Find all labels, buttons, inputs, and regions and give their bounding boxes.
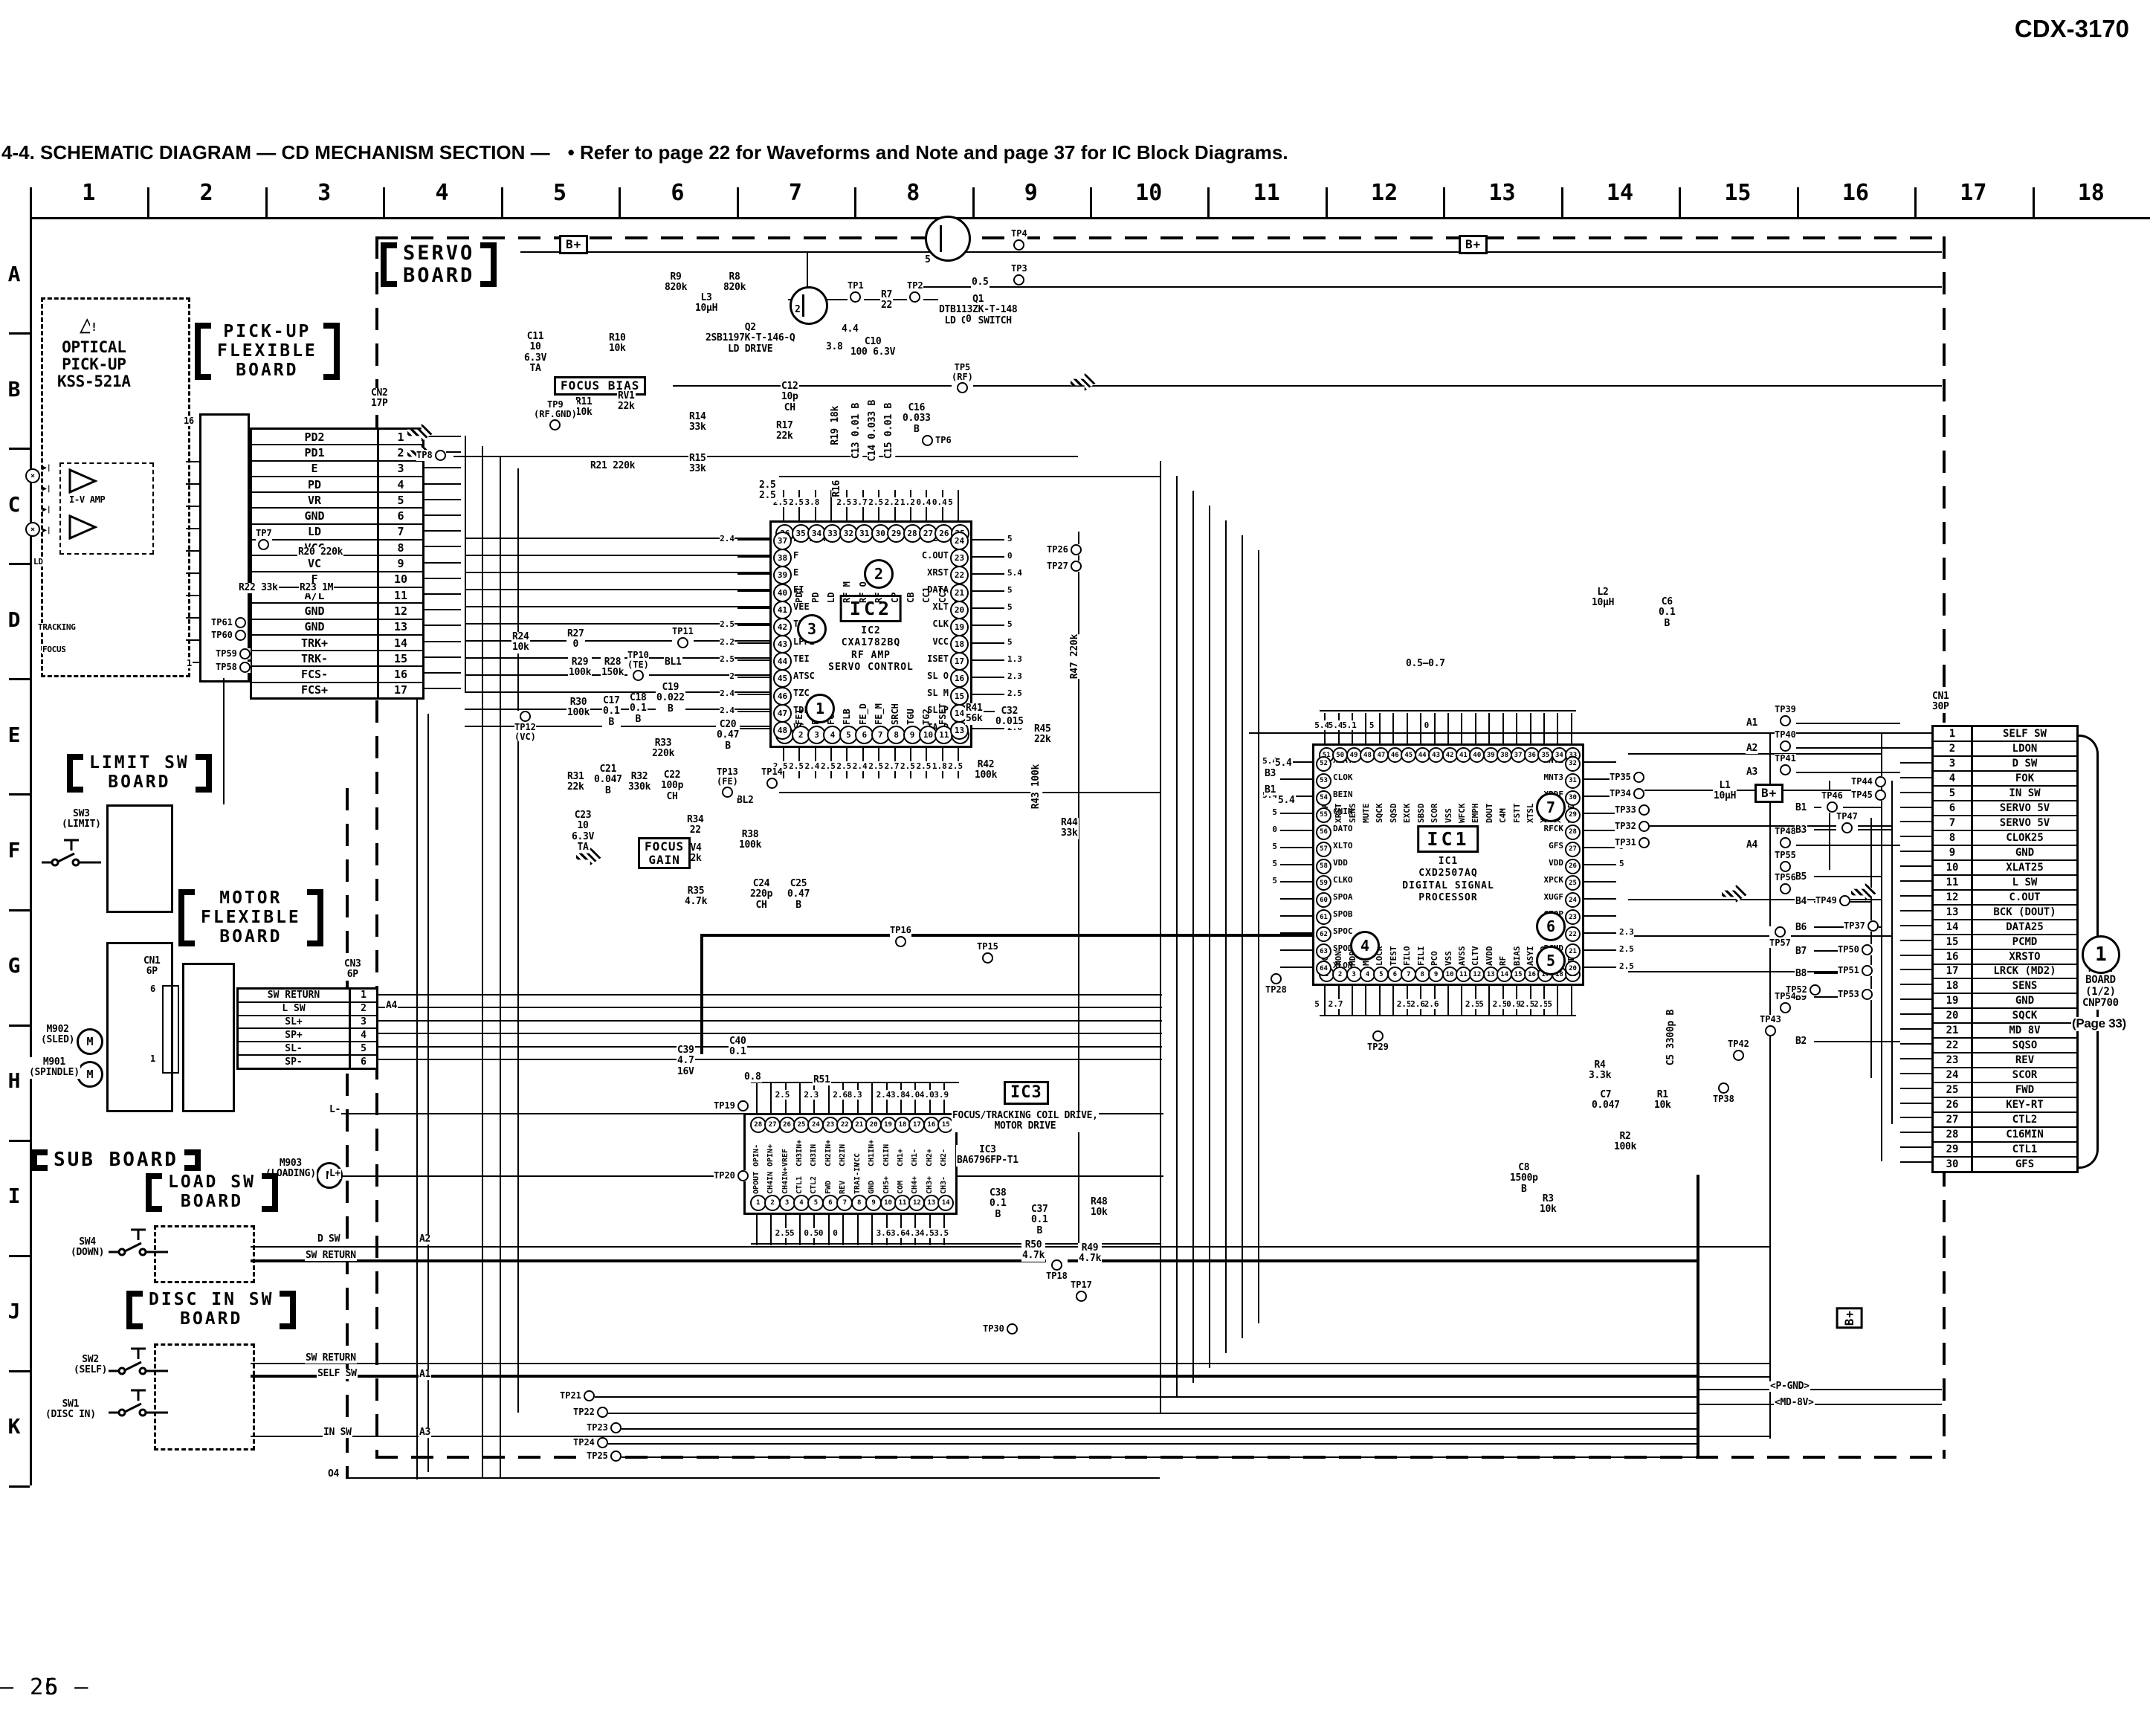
annotation: R47 220k — [1069, 634, 1081, 679]
test-point: TP28 — [1265, 973, 1287, 995]
ic-pin-voltage: 5 — [1272, 859, 1277, 868]
ic1-label: IC1IC1CXD2507AQDIGITAL SIGNALPROCESSOR — [1402, 825, 1494, 904]
section-title: 4-4. SCHEMATIC DIAGRAM — CD MECHANISM SE… — [1, 141, 550, 164]
test-point-circle — [1780, 883, 1791, 894]
ic-pin-label: CTL1 — [795, 1161, 804, 1194]
cn2-stub — [420, 562, 461, 564]
ic-pin-stub — [1461, 713, 1462, 746]
ic-pin-stub — [1582, 898, 1616, 900]
pin-name: BCK (DOUT) — [1973, 906, 2076, 919]
annotation: R19 18k — [830, 406, 842, 445]
annotation: R27 0 — [566, 629, 585, 651]
ic-pin-label: CH5+ — [882, 1161, 891, 1194]
ic-pin-21: 21 — [1565, 943, 1581, 959]
wire-h — [922, 286, 1942, 288]
test-point: TP46 — [1821, 791, 1843, 813]
ic-pin-label: CNIN — [1333, 807, 1353, 816]
grid-row-J: J — [3, 1299, 25, 1323]
cn1-stub — [1900, 1103, 1931, 1104]
connector-row: 16XRSTO — [1934, 950, 2076, 965]
cn1-stub — [1900, 747, 1931, 749]
test-point-circle — [850, 291, 861, 303]
cn2-stub — [420, 672, 461, 674]
test-point-label: TP5 (RF) — [952, 363, 973, 381]
pin-name: E — [252, 462, 377, 476]
callout-6: 6 — [1536, 911, 1566, 941]
annotation: C6 0.1 B — [1658, 597, 1676, 629]
ic-pin-label: CLK — [932, 619, 949, 629]
grid-col-tick — [2033, 187, 2035, 217]
connector-row: 2LDON — [1934, 742, 2076, 757]
annotation: CN1 6P — [143, 956, 161, 978]
annotation: RV1 22k — [617, 391, 636, 413]
annotation: A1 — [419, 1369, 431, 1380]
annotation: TRACKING — [37, 623, 77, 632]
ic-pin-label: FILI — [1416, 906, 1426, 966]
ic-pin-voltage: 2.5 — [868, 497, 883, 507]
annotation: C38 0.1 B — [989, 1188, 1007, 1220]
cn1-stub — [1900, 1073, 1931, 1074]
bracket-left — [195, 323, 211, 380]
pin-number: 3 — [377, 462, 422, 476]
ic-pin-voltage: 5 — [1007, 602, 1013, 612]
ic-pin-stub — [1392, 984, 1394, 1016]
wire-h — [465, 572, 773, 573]
connector-row: SL-5 — [239, 1042, 376, 1056]
test-point-label: TP59 — [216, 649, 237, 659]
ic-pin-label: FWD — [824, 1161, 833, 1194]
ic-pin-label: CLOK — [1333, 772, 1353, 782]
ic-pin-44: 44 — [773, 652, 792, 671]
grid-col-17: 17 — [1914, 180, 2032, 206]
ic-pin-stub — [756, 1082, 758, 1115]
test-point-label: TP21 — [560, 1391, 581, 1401]
ic-pin-voltage: 5 — [790, 1228, 795, 1238]
test-point-label: TP39 — [1775, 705, 1796, 714]
test-point-circle — [909, 291, 920, 303]
board-label: PICK-UP FLEXIBLE BOARD — [195, 323, 340, 380]
test-point: TP3 — [1011, 264, 1027, 285]
grid-col-tick — [737, 187, 739, 217]
annotation: R48 10k — [1090, 1197, 1108, 1219]
ic-pin-stub — [1365, 984, 1366, 1016]
test-point: TP44 — [1851, 776, 1886, 787]
photodiode-icon: ▶| — [42, 485, 51, 493]
cn1-stub — [1900, 940, 1931, 941]
callout-4: 4 — [1350, 931, 1380, 961]
ic-pin-voltage: 2.2 — [885, 497, 900, 507]
wire-v — [223, 678, 225, 804]
test-point: TP34 — [1610, 788, 1644, 799]
annotation: 0.5 — [971, 277, 990, 288]
ic-pin-stub — [970, 694, 1004, 695]
test-point: TP47 — [1836, 812, 1858, 833]
ic-pin-voltage: 3.8 — [891, 1090, 905, 1100]
test-point-label: TP50 — [1838, 945, 1859, 955]
annotation: A1 — [1746, 718, 1758, 729]
test-point-label: TP38 — [1713, 1094, 1734, 1104]
grid-col-tick — [1090, 187, 1092, 217]
ic-pin-label: ASYI — [1526, 906, 1535, 966]
ic-pin-label: XUGF — [1544, 892, 1564, 902]
test-point-label: TP55 — [1775, 851, 1796, 860]
ic-pin-37: 37 — [773, 532, 792, 550]
ic-pin-43: 43 — [773, 635, 792, 654]
annotation: M901 (SPINDLE) — [28, 1057, 80, 1079]
test-point-label: TP15 — [977, 942, 998, 952]
connector-row: 21MD 8V — [1934, 1024, 2076, 1039]
annotation: Q1 DTB113ZK-T-148 LD ON SWITCH — [938, 294, 1018, 326]
annotation: C7 0.047 — [1591, 1090, 1621, 1111]
ic-pin-label: SL M — [927, 688, 949, 698]
test-point: TP32 — [1615, 821, 1650, 832]
connector-row: 1SELF SW — [1934, 727, 2076, 742]
wire-h — [251, 1376, 1769, 1378]
ic-pin-stub — [1447, 984, 1449, 1016]
test-point-circle — [239, 662, 251, 673]
wire-h — [453, 456, 1078, 457]
test-point: TP16 — [890, 926, 911, 947]
ic-pin-stub — [737, 642, 772, 644]
test-point-circle — [610, 1451, 622, 1462]
test-point: TP31 — [1615, 837, 1650, 848]
annotation: R29 100k — [568, 657, 592, 679]
cn1-stub — [1900, 984, 1931, 985]
ic-pin-23: 23 — [950, 549, 969, 567]
pin-number: 22 — [1934, 1039, 1973, 1052]
connector-row: GND6 — [252, 509, 422, 524]
pin-number: 17 — [1934, 965, 1973, 978]
ic-pin-label: XRST — [927, 567, 949, 578]
ic-pin-voltage: 2.5 — [1397, 999, 1412, 1009]
ic-pin-stub — [1557, 713, 1558, 746]
test-point: TP15 — [977, 942, 998, 964]
test-point-label: TP51 — [1838, 966, 1859, 975]
board-label: SERVO BOARD — [381, 242, 497, 287]
ic-pin-stub — [1280, 830, 1314, 831]
ic-pin-voltage: 5 — [1007, 637, 1013, 647]
pin-number: 10 — [1934, 861, 1973, 874]
test-point-circle — [235, 617, 246, 628]
cn1-stub — [1900, 1043, 1931, 1045]
ic-pin-stub — [770, 1213, 772, 1245]
switch-icon — [42, 839, 101, 874]
ic-pin-label: SPOC — [1333, 926, 1353, 936]
annotation: 5.4 — [1277, 796, 1296, 806]
wire-h — [374, 1059, 1162, 1060]
cn1-stub — [1900, 851, 1931, 852]
cn1-stub — [1900, 1146, 1931, 1148]
ic-pin-label: TGU — [905, 665, 916, 725]
test-point: TP59 — [216, 648, 251, 659]
ic-pin-label: DATO — [1333, 824, 1353, 833]
test-point-label: TP11 — [672, 627, 694, 636]
board-label-text: SERVO BOARD — [403, 242, 474, 287]
ic-pin-58: 58 — [1316, 859, 1331, 874]
ic-pin-9: 9 — [1428, 967, 1444, 982]
annotation: 2.5 2.5 — [758, 480, 777, 502]
annotation: SW RETURN — [305, 1353, 357, 1364]
pin-number: 19 — [1934, 994, 1973, 1007]
test-point-label: TP10 (TE) — [627, 651, 649, 669]
grid-col-tick — [1679, 187, 1681, 217]
pin-number: 15 — [377, 651, 422, 665]
ic-pin-stub — [737, 590, 772, 592]
grid-row-K: K — [3, 1414, 25, 1439]
annotation: R51 — [813, 1075, 831, 1085]
annotation: R44 33k — [1060, 818, 1079, 839]
ic-pin-21: 21 — [950, 584, 969, 602]
pin-number: 16 — [377, 667, 422, 681]
ic-pin-voltage: 2.4 — [853, 761, 868, 771]
cn2-stub — [420, 530, 461, 532]
annotation: R43 100k — [1030, 764, 1042, 809]
ic-pin-stub — [737, 694, 772, 695]
ic-pin-voltage: 5.4 — [1314, 720, 1329, 730]
ic-pin-45: 45 — [773, 669, 792, 688]
annotation: C11 10 6.3V TA — [523, 332, 547, 374]
pin-number: 13 — [377, 620, 422, 634]
ic-pin-voltage: 5 — [1479, 999, 1484, 1009]
test-point-label: TP37 — [1844, 921, 1865, 931]
pin-name: CTL2 — [1973, 1113, 2076, 1126]
ic-pin-voltage: 2.5 — [1619, 961, 1634, 971]
test-point-label: TP47 — [1836, 812, 1858, 822]
ic-pin-label: SPOB — [1333, 909, 1353, 919]
annotation: R4 3.3k — [1588, 1060, 1612, 1082]
test-point-label: TP6 — [935, 436, 952, 445]
pin-number: 26 — [1934, 1098, 1973, 1111]
connector-row: SP+4 — [239, 1029, 376, 1042]
wire-h — [779, 792, 1160, 793]
ic-pin-voltage: 5 — [1007, 585, 1013, 595]
callout-7: 7 — [1536, 793, 1566, 822]
annotation: SW3 (LIMIT) — [61, 809, 102, 830]
test-point: TP8 — [416, 450, 446, 461]
wire-h — [1814, 1041, 1900, 1042]
annotation: 0 — [965, 314, 972, 325]
test-point: TP38 — [1713, 1082, 1734, 1104]
ic-pin-voltage: 4.0 — [905, 1090, 920, 1100]
test-point: TP43 — [1760, 1015, 1781, 1036]
wire-h — [374, 1020, 1162, 1022]
connector-row: PD4 — [252, 477, 422, 493]
annotation: 6 — [149, 984, 156, 994]
wire-v — [1769, 732, 1771, 1439]
annotation: R38 100k — [738, 830, 762, 851]
ic-pin-label: MNT3 — [1544, 772, 1564, 782]
bracket-left — [146, 1173, 162, 1212]
annotation: B4 — [1795, 897, 1807, 907]
annotation: 3.8 — [825, 342, 844, 352]
ic-pin-stub — [737, 728, 772, 729]
wire-v — [517, 468, 519, 1413]
annotation: FOCUS/TRACKING COIL DRIVE, MOTOR DRIVE — [952, 1111, 1099, 1132]
grid-col-1: 1 — [30, 180, 147, 206]
ic-pin-stub — [1582, 967, 1616, 968]
test-point-circle — [1841, 822, 1853, 833]
ic-pin-label: XLTO — [1333, 841, 1353, 851]
board-label: DISC IN SW BOARD — [126, 1291, 296, 1329]
pin-number: 30 — [1934, 1158, 1973, 1171]
annotation: CN1 30P — [1931, 691, 1950, 713]
annotation: B6 — [1795, 923, 1807, 933]
annotation: C21 0.047 B — [593, 764, 623, 796]
ic-pin-stub — [1280, 898, 1314, 900]
ic-pin-22: 22 — [836, 1117, 853, 1133]
ic-pin-stub — [1582, 847, 1616, 848]
ic-pin-stub — [1582, 761, 1616, 763]
wire-h — [1783, 772, 1900, 773]
ic-pin-57: 57 — [1316, 842, 1331, 857]
cn1-stub — [1900, 1132, 1931, 1133]
annotation: B+ — [559, 235, 588, 254]
cn2-stub — [420, 467, 461, 468]
ic-pin-label: SPOA — [1333, 892, 1353, 902]
ic-pin-label: MUTE — [1361, 764, 1371, 823]
ic-pin-31: 31 — [1565, 773, 1581, 789]
wire-v — [1192, 491, 1194, 1383]
grid-col-12: 12 — [1326, 180, 1443, 206]
connector-row: LD7 — [252, 525, 422, 541]
disc-in-sw-board-rect — [154, 1343, 255, 1451]
bracket-right — [184, 1149, 201, 1171]
test-point: TP23 — [587, 1422, 622, 1433]
motor-icon: M — [77, 1061, 103, 1088]
ic-pin-stub — [1530, 713, 1531, 746]
ic-pin-stub — [970, 677, 1004, 678]
grid-row-tick — [9, 1025, 30, 1027]
ic-pin-stub — [1379, 713, 1381, 746]
grid-row-tick — [9, 1370, 30, 1372]
test-point-circle — [1071, 544, 1082, 555]
test-point-circle — [633, 670, 644, 681]
pin-name: PD2 — [252, 430, 377, 444]
ic-pin-stub — [1434, 713, 1436, 746]
pin-name: L SW — [1973, 876, 2076, 889]
test-point-circle — [584, 1390, 595, 1401]
test-point-circle — [549, 419, 561, 430]
wire-h — [374, 1046, 1162, 1048]
ic-pin-stub — [1582, 915, 1616, 917]
cn1-stub — [1900, 792, 1931, 793]
ic-pin-20: 20 — [950, 601, 969, 619]
cn1-stub — [1900, 1088, 1931, 1089]
annotation: R49 4.7k — [1078, 1243, 1102, 1265]
test-point-circle — [1862, 989, 1873, 1000]
test-point-circle — [1775, 926, 1786, 938]
ic-pin-label: EMPH — [1471, 764, 1480, 823]
ic-pin-voltage: 2.4 — [720, 688, 735, 698]
photodiode-icon: ▶| — [42, 526, 51, 535]
wire-v — [1242, 535, 1243, 1338]
pin-name: C16MIN — [1973, 1128, 2076, 1141]
annotation: C37 0.1 B — [1030, 1204, 1049, 1236]
ic-pin-stub — [1324, 984, 1326, 1016]
pin-name: IN SW — [1973, 787, 2076, 800]
annotation: R14 33k — [688, 412, 707, 433]
annotation: B5 — [1795, 872, 1807, 882]
motor-flex-rect — [182, 963, 235, 1112]
annotation: R41 56k — [965, 703, 984, 725]
ic-pin-42: 42 — [773, 618, 792, 636]
grid-col-7: 7 — [737, 180, 854, 206]
annotation: R42 100k — [974, 760, 998, 781]
ic-pin-38: 38 — [773, 549, 792, 567]
pin-number: 1 — [1934, 727, 1973, 740]
ic-pin-label: WFCK — [1457, 764, 1467, 823]
ic-pin-label: RFCK — [1544, 824, 1564, 833]
grid-row-A: A — [3, 262, 25, 286]
load-sw-board-rect — [154, 1225, 255, 1283]
ic-pin-voltage: 5 — [1272, 876, 1277, 885]
annotation: C10 100 6.3V — [850, 337, 896, 358]
ic-pin-voltage: 2.5 — [1007, 688, 1022, 698]
ic-pin-voltage: 2.7 — [885, 761, 900, 771]
ic-pin-label: DOUT — [1485, 764, 1494, 823]
ic-pin-voltage: 2.5 — [916, 761, 931, 771]
annotation: M902 (SLED) — [40, 1025, 75, 1046]
annotation: R24 10k — [511, 632, 530, 654]
connector-row: PD12 — [252, 445, 422, 461]
ic-pin-label: ATSC — [793, 671, 815, 681]
test-point: TP39 — [1775, 705, 1796, 726]
ic-pin-voltage: 2.5 — [1493, 999, 1508, 1009]
pin-number: 28 — [1934, 1128, 1973, 1141]
grid-col-tick — [972, 187, 975, 217]
ic-pin-label: GFS — [1549, 841, 1563, 851]
ic-pin-voltage: 8.3 — [848, 1090, 862, 1100]
ic-pin-stub — [1582, 813, 1616, 814]
ic-pin-stub — [871, 1082, 873, 1115]
cn1-stub — [1900, 836, 1931, 837]
wire-h — [251, 1363, 1769, 1364]
test-point-label: TP40 — [1775, 730, 1796, 740]
test-point-circle — [239, 648, 251, 659]
connector-row: VR5 — [252, 493, 422, 509]
ic-pin-label: RF — [1498, 906, 1508, 966]
connector-row: 29CTL1 — [1934, 1143, 2076, 1158]
wire-h — [1783, 723, 1900, 724]
ic-pin-18: 18 — [950, 635, 969, 654]
ic-pin-label: DATA — [927, 584, 949, 595]
test-point-circle — [1733, 1050, 1744, 1061]
bracket-left — [178, 889, 195, 946]
test-point-circle — [737, 1100, 749, 1111]
annotation: C12 10p CH — [781, 381, 799, 413]
pin-name: KEY-RT — [1973, 1098, 2076, 1111]
annotation: ! — [90, 321, 98, 334]
test-point: TP13 (FE) — [717, 767, 738, 798]
limit-sw-board-rect — [106, 804, 173, 913]
bracket-right — [280, 1291, 296, 1329]
annotation: C22 100p CH — [660, 770, 684, 802]
ic-pin-55: 55 — [1316, 807, 1331, 823]
annotation: C13 0.01 B — [850, 403, 862, 459]
detector-icon: × — [25, 468, 40, 483]
bracket-left — [381, 242, 397, 287]
pin-name: LDON — [1973, 742, 2076, 755]
schematic-page: CDX-3170 4-4. SCHEMATIC DIAGRAM — CD MEC… — [0, 0, 2150, 1736]
wire-v — [465, 436, 466, 692]
test-point-label: TP58 — [216, 662, 237, 672]
cn1-stub — [1900, 821, 1931, 822]
board-label-text: MOTOR FLEXIBLE BOARD — [201, 889, 301, 946]
detector-icon: × — [25, 522, 40, 537]
ic-pin-voltage: 0 — [1007, 551, 1013, 561]
ic-pin-stub — [970, 539, 1004, 541]
pin-number: 13 — [1934, 906, 1973, 919]
